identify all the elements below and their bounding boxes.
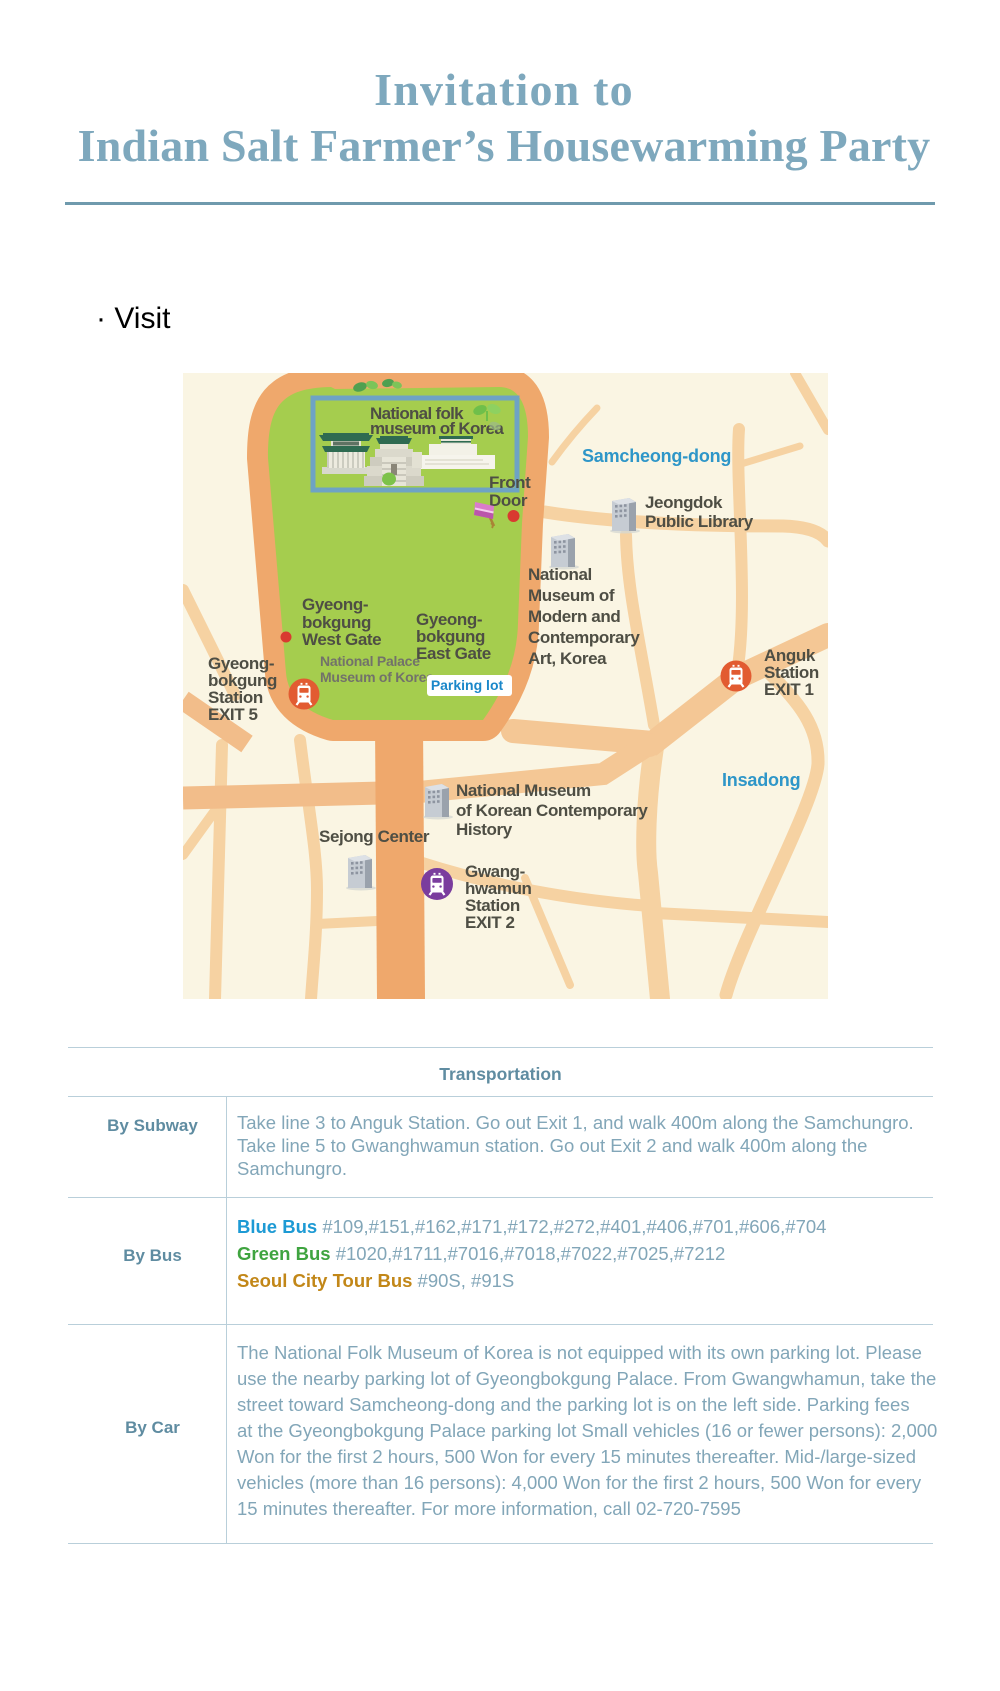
svg-text:Jeongdok: Jeongdok: [645, 493, 723, 512]
svg-text:EXIT 1: EXIT 1: [764, 680, 814, 699]
svg-text:East Gate: East Gate: [416, 644, 491, 663]
svg-text:National Museum: National Museum: [456, 781, 591, 800]
svg-text:Museum of Korea: Museum of Korea: [320, 669, 434, 685]
svg-text:Public Library: Public Library: [645, 512, 754, 531]
svg-text:Contemporary: Contemporary: [528, 628, 640, 647]
svg-text:National Palace: National Palace: [320, 653, 420, 669]
svg-text:Sejong Center: Sejong Center: [319, 827, 430, 846]
svg-text:History: History: [456, 820, 513, 839]
svg-text:Insadong: Insadong: [722, 770, 800, 790]
svg-text:Art, Korea: Art, Korea: [528, 649, 607, 668]
svg-text:West Gate: West Gate: [302, 630, 381, 649]
svg-text:of Korean Contemporary: of Korean Contemporary: [456, 801, 648, 820]
svg-text:Gyeong-: Gyeong-: [302, 595, 368, 614]
svg-text:Samcheong-dong: Samcheong-dong: [582, 446, 731, 466]
svg-text:EXIT 2: EXIT 2: [465, 913, 515, 932]
svg-text:Front: Front: [489, 473, 531, 492]
svg-text:museum of Korea: museum of Korea: [370, 419, 504, 438]
svg-text:Modern and: Modern and: [528, 607, 620, 626]
svg-text:Door: Door: [489, 491, 528, 510]
svg-text:EXIT 5: EXIT 5: [208, 705, 258, 724]
svg-text:National: National: [528, 565, 592, 584]
svg-text:Parking lot: Parking lot: [431, 677, 504, 693]
svg-text:Museum of: Museum of: [528, 586, 615, 605]
